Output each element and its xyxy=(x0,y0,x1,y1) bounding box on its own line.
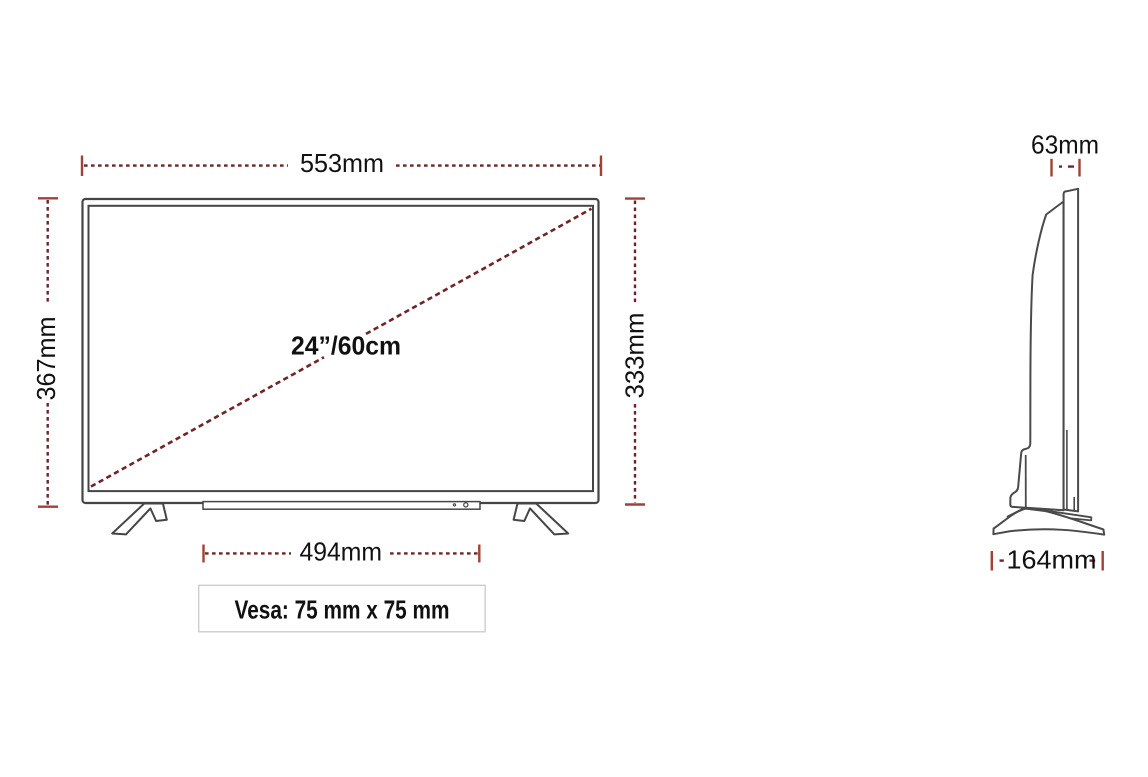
svg-text:Vesa: 75 mm x 75 mm: Vesa: 75 mm x 75 mm xyxy=(235,594,450,624)
svg-text:63mm: 63mm xyxy=(1031,130,1099,160)
svg-text:494mm: 494mm xyxy=(299,537,382,567)
svg-text:367mm: 367mm xyxy=(31,317,61,401)
svg-text:553mm: 553mm xyxy=(300,148,384,178)
svg-text:164mm: 164mm xyxy=(1007,545,1097,575)
svg-text:333mm: 333mm xyxy=(620,313,650,399)
svg-text:24”/60cm: 24”/60cm xyxy=(291,331,401,361)
